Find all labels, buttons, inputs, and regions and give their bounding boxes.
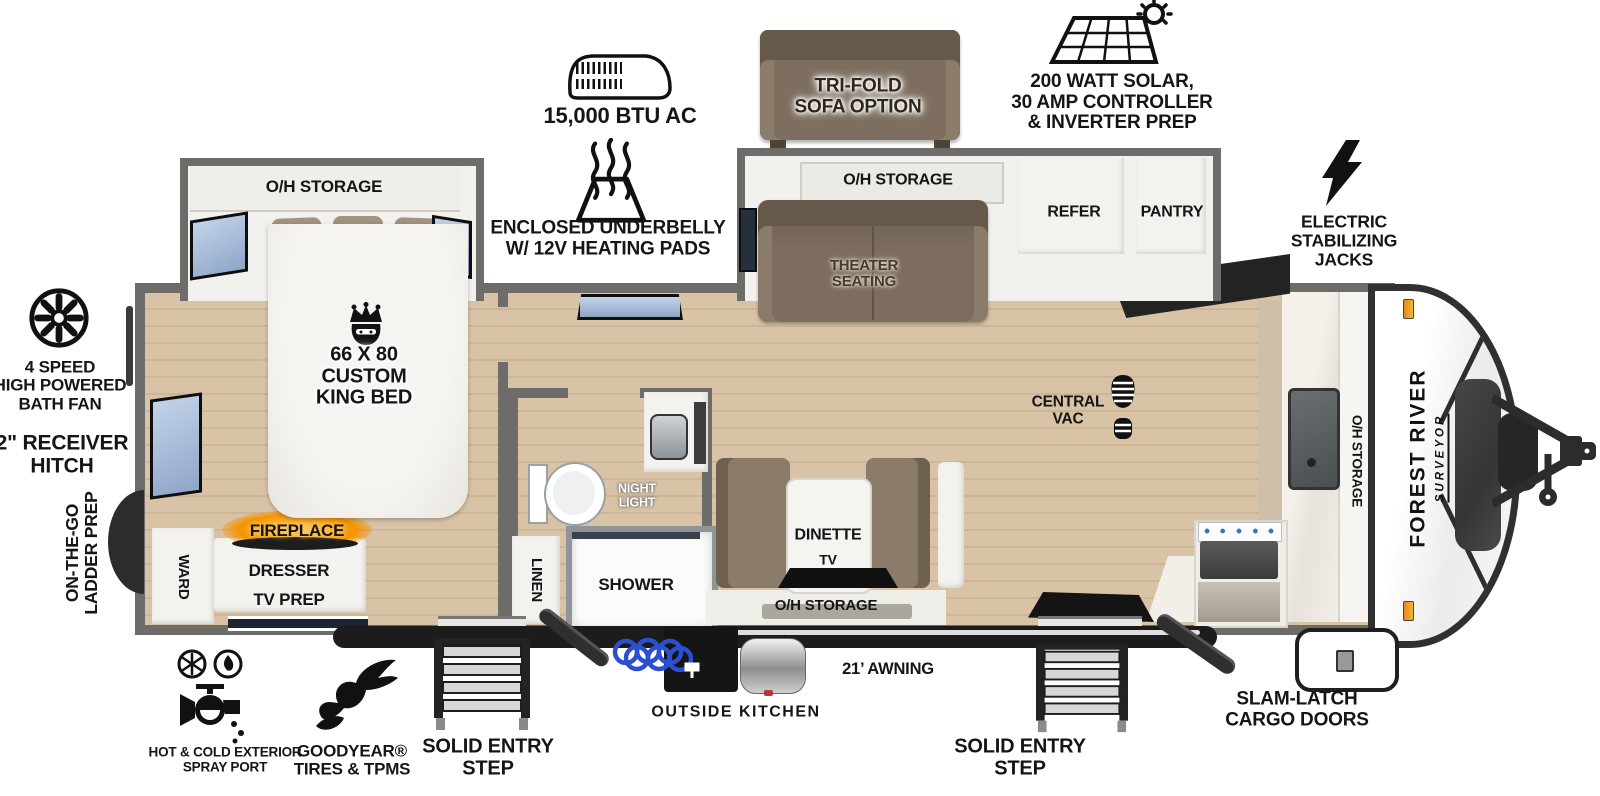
stove-burners (1200, 525, 1278, 537)
central-vac-label: CENTRAL VAC (1032, 394, 1105, 427)
dinette-tv-label: TV (819, 552, 837, 567)
dinette-oh-storage-label: O/H STORAGE (775, 598, 878, 614)
entry-step-front-icon (1030, 644, 1134, 736)
bedroom-wall-upper (498, 283, 508, 307)
awning-label: 21’ AWNING (842, 661, 934, 679)
bath-mirror (694, 402, 706, 464)
kitchen-sink (1288, 388, 1340, 490)
cargo-door-latch (1336, 650, 1354, 672)
outside-kitchen-label: OUTSIDE KITCHEN (651, 703, 820, 720)
linen-label: LINEN (528, 558, 544, 602)
awning-highlight (690, 630, 1200, 635)
receiver-hitch-label: 2" RECEIVER HITCH (0, 432, 128, 477)
entry-step-rear-icon (430, 638, 534, 734)
tires-label: GOODYEAR® TIRES & TPMS (294, 743, 411, 780)
bath-sink (650, 414, 688, 460)
stove-oven-door (1200, 541, 1278, 579)
refer-label: REFER (1047, 203, 1100, 220)
brand-model: SURVEYOR (1435, 414, 1450, 503)
theater-slide-window (739, 208, 757, 272)
theater-seating-label: THEATER SEATING (830, 258, 898, 290)
ladder-prep-label: ON-THE-GO LADDER PREP (63, 491, 101, 614)
stabilizing-jacks-label: ELECTRIC STABILIZING JACKS (1291, 213, 1397, 270)
ward-label: WARD (175, 554, 191, 599)
night-light-label: NIGHT LIGHT (618, 483, 656, 510)
outside-griddle (740, 638, 806, 694)
pantry-label: PANTRY (1141, 203, 1204, 220)
spray-port-icon (168, 648, 280, 748)
cap-marker-light-bottom (1403, 601, 1414, 621)
dinette-label: DINETTE (794, 526, 861, 543)
goodyear-wingfoot-icon (308, 656, 408, 736)
spare-tire-bump (108, 490, 144, 594)
trifold-sofa-foot-left (770, 140, 786, 148)
lightning-bolt-icon (1322, 140, 1366, 208)
bedroom-slide-window-left (190, 211, 248, 280)
coiled-hose-icon (612, 624, 708, 694)
trifold-sofa-foot-right (934, 140, 950, 148)
entry-step-front-label: SOLID ENTRY STEP (954, 736, 1086, 779)
heated-underbelly-icon (566, 138, 656, 224)
brand-block: FOREST RIVER SURVEYOR (1407, 368, 1450, 547)
solar-label: 200 WATT SOLAR, 30 AMP CONTROLLER & INVE… (1011, 72, 1212, 134)
king-bed-label: 66 X 80 CUSTOM KING BED (316, 345, 412, 410)
kitchen-counter-face (1258, 300, 1284, 530)
stove-drawer (1198, 582, 1280, 622)
dinette-side-panel (938, 462, 964, 588)
kitchen-sink-drain (1307, 458, 1316, 467)
tv-prep-label: TV PREP (253, 591, 324, 609)
cargo-doors-label: SLAM-LATCH CARGO DOORS (1225, 689, 1368, 730)
hitch-a-frame (1492, 392, 1600, 510)
solar-panel-icon (1040, 0, 1174, 74)
bath-fan-label: 4 SPEED HIGH POWERED BATH FAN (0, 358, 126, 413)
dinette-bench-left (716, 458, 790, 588)
ladder-prep-rail (126, 306, 133, 386)
bedroom-oh-storage-label: O/H STORAGE (266, 178, 383, 196)
entry-step-rear-label: SOLID ENTRY STEP (422, 736, 554, 779)
theater-oh-storage-label: O/H STORAGE (843, 171, 953, 188)
fireplace-label: FIREPLACE (250, 522, 345, 540)
spray-port-label: HOT & COLD EXTERIOR SPRAY PORT (149, 745, 302, 774)
bootprint-icon (1106, 374, 1140, 442)
floorplan-canvas: 15,000 BTU AC ENCLOSED UNDERBELLY W/ 12V… (0, 0, 1600, 796)
kitchen-oh-storage-label: O/H STORAGE (1349, 415, 1364, 507)
king-crown-icon (344, 302, 388, 348)
ac-unit-icon (560, 48, 676, 106)
outside-griddle-knob (764, 690, 773, 696)
bedroom-wall-lower (498, 362, 508, 625)
trifold-sofa-label: TRI-FOLD SOFA OPTION (795, 76, 922, 117)
dinette-tv-shape (778, 568, 898, 588)
toilet-seat (553, 471, 595, 515)
brand-name: FOREST RIVER (1407, 368, 1431, 547)
bath-fan-icon (27, 286, 91, 350)
shower-glass (572, 532, 700, 539)
cap-marker-light-top (1403, 299, 1414, 319)
ac-label: 15,000 BTU AC (543, 104, 696, 128)
dresser-label: DRESSER (249, 562, 330, 580)
hall-window (577, 294, 683, 320)
underbelly-label: ENCLOSED UNDERBELLY W/ 12V HEATING PADS (490, 218, 725, 259)
shower-label: SHOWER (598, 576, 673, 594)
rear-window (150, 392, 202, 499)
